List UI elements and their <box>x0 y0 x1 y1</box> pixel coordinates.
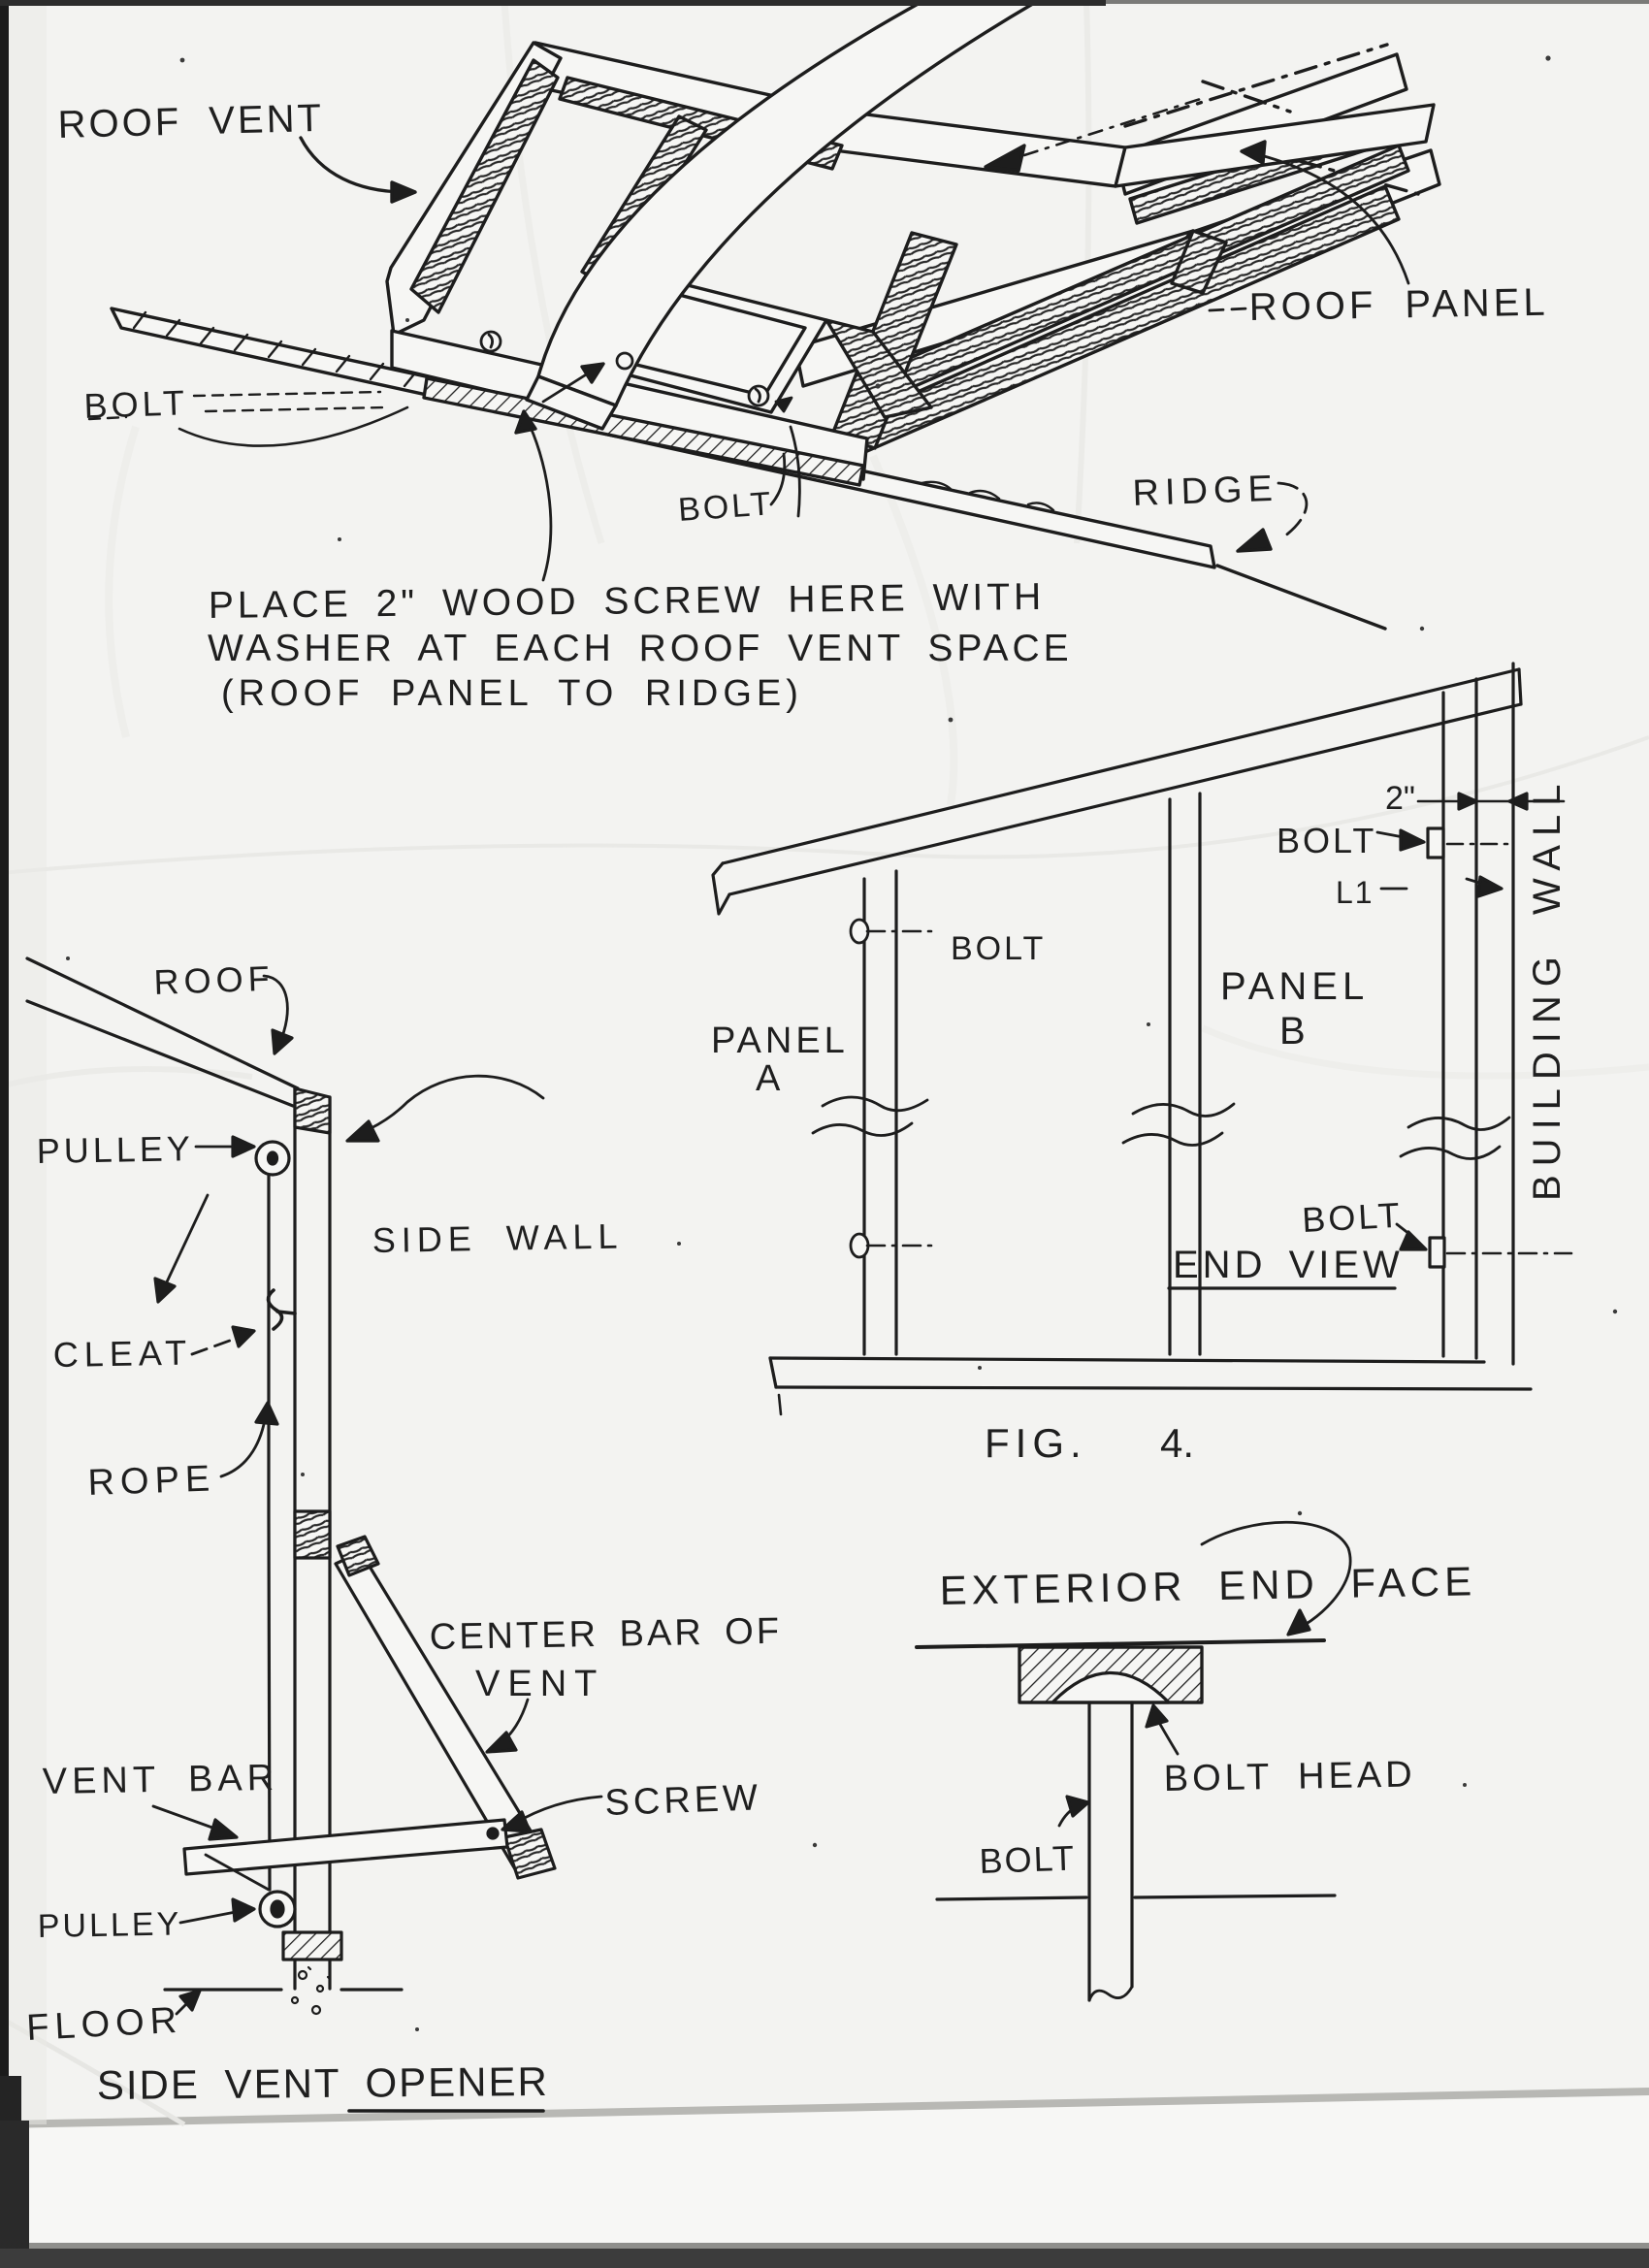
svg-text:BOLT HEAD: BOLT HEAD <box>1163 1754 1416 1799</box>
svg-text:SCREW: SCREW <box>604 1777 762 1824</box>
svg-text:B: B <box>1279 1010 1306 1053</box>
svg-text:2": 2" <box>1385 780 1415 817</box>
svg-text:BOLT: BOLT <box>677 485 775 529</box>
svg-text:WASHER AT EACH ROOF VENT SPAC: WASHER AT EACH ROOF VENT SPACE <box>208 628 1073 669</box>
svg-text:BOLT: BOLT <box>1277 821 1376 860</box>
svg-text:EXTERIOR END FACE: EXTERIOR END FACE <box>939 1558 1476 1613</box>
svg-text:FIG.: FIG. <box>985 1420 1087 1466</box>
svg-text:PULLEY: PULLEY <box>36 1128 194 1171</box>
svg-text:FLOOR: FLOOR <box>25 2000 183 2049</box>
svg-text:L1: L1 <box>1336 875 1374 910</box>
svg-text:BOLT: BOLT <box>951 930 1046 967</box>
svg-text:ROPE: ROPE <box>87 1458 216 1504</box>
svg-text:PANEL: PANEL <box>1220 965 1369 1008</box>
svg-text:ROOF: ROOF <box>153 958 275 1002</box>
svg-text:SIDE WALL: SIDE WALL <box>372 1215 623 1260</box>
svg-text:CLEAT: CLEAT <box>52 1333 192 1375</box>
svg-text:RIDGE: RIDGE <box>1132 469 1279 514</box>
svg-text:PLACE 2" WOOD SCREW HERE WITH: PLACE 2" WOOD SCREW HERE WITH <box>209 576 1046 627</box>
svg-text:END VIEW: END VIEW <box>1173 1244 1404 1286</box>
svg-text:BUILDING WALL: BUILDING WALL <box>1526 776 1568 1201</box>
svg-text:VENT: VENT <box>475 1664 604 1704</box>
svg-text:A: A <box>756 1058 781 1099</box>
svg-text:BOLT: BOLT <box>1301 1195 1403 1240</box>
svg-text:PANEL: PANEL <box>711 1021 849 1061</box>
svg-text:BOLT: BOLT <box>979 1838 1077 1881</box>
svg-text:CENTER BAR OF: CENTER BAR OF <box>429 1611 782 1658</box>
svg-text:ROOF VENT: ROOF VENT <box>57 97 324 146</box>
svg-text:ROOF PANEL: ROOF PANEL <box>1248 281 1549 329</box>
svg-text:SIDE VENT OPENER: SIDE VENT OPENER <box>97 2058 549 2108</box>
svg-text:(ROOF PANEL TO RIDGE): (ROOF PANEL TO RIDGE) <box>221 673 803 714</box>
svg-text:BOLT: BOLT <box>83 382 189 426</box>
svg-text:4.: 4. <box>1160 1420 1194 1466</box>
svg-text:VENT BAR: VENT BAR <box>42 1758 278 1802</box>
svg-text:PULLEY: PULLEY <box>37 1905 181 1945</box>
